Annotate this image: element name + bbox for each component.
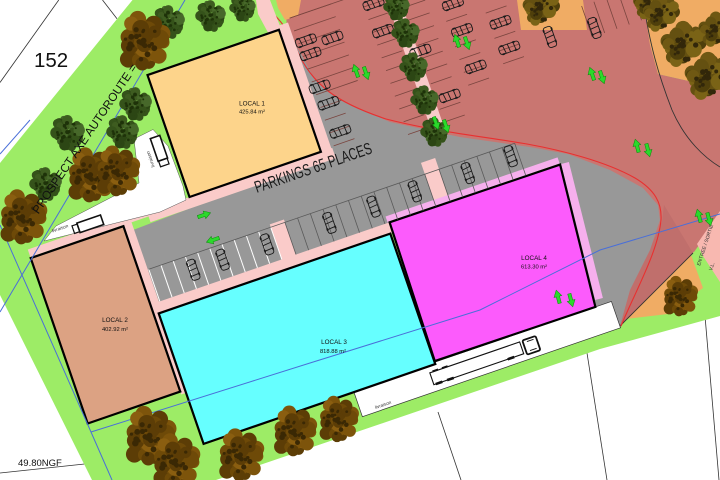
svg-text:425.84 m²: 425.84 m² — [239, 110, 265, 116]
svg-text:152: 152 — [34, 49, 68, 72]
svg-text:818.88 m²: 818.88 m² — [320, 349, 346, 355]
svg-text:49.80NGF: 49.80NGF — [18, 458, 62, 469]
svg-text:LOCAL 4: LOCAL 4 — [521, 255, 547, 262]
svg-text:402.92 m²: 402.92 m² — [102, 327, 128, 333]
svg-text:613.30 m²: 613.30 m² — [521, 265, 547, 271]
svg-text:LOCAL 2: LOCAL 2 — [102, 317, 128, 324]
svg-text:LOCAL 1: LOCAL 1 — [239, 101, 265, 108]
svg-text:LOCAL 3: LOCAL 3 — [321, 339, 347, 346]
